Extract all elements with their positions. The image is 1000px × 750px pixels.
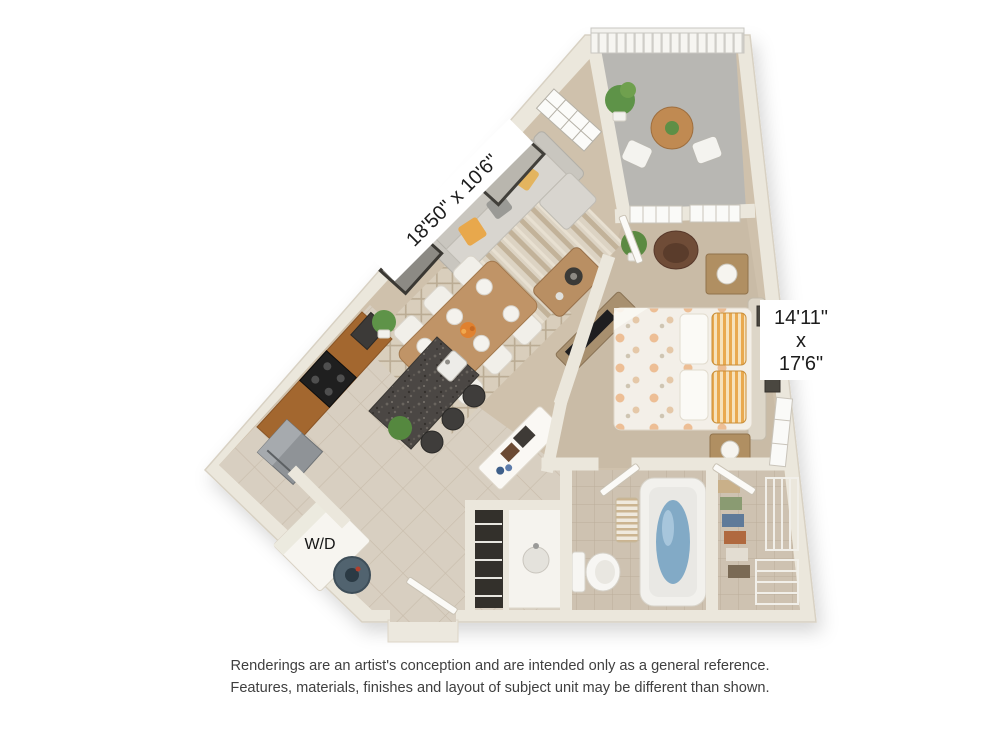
towels bbox=[616, 498, 638, 542]
disclaimer: Renderings are an artist's conception an… bbox=[230, 658, 769, 696]
lamp bbox=[721, 441, 739, 459]
entry-step bbox=[388, 620, 458, 642]
disclaimer-line1: Renderings are an artist's conception an… bbox=[230, 658, 769, 674]
bar-stool bbox=[442, 408, 464, 430]
tub-water bbox=[656, 500, 690, 584]
disclaimer-line2: Features, materials, finishes and layout… bbox=[230, 680, 769, 696]
vanity-sink bbox=[523, 547, 549, 573]
bar-stool bbox=[463, 385, 485, 407]
bedroom-dimension-line1: 14'11" bbox=[774, 307, 828, 329]
bedroom-dimension-line3: 17'6" bbox=[779, 353, 823, 375]
accent-pillow bbox=[712, 313, 746, 365]
floor-plan-rendering: 18'50" x 10'6" 14'11" x 17'6" W/D Render… bbox=[0, 0, 1000, 750]
bedroom-dimension-line2: x bbox=[796, 330, 806, 352]
bedroom-dimension-label: 14'11" x 17'6" bbox=[760, 300, 844, 380]
accent-pillow bbox=[712, 371, 746, 423]
bar-stool bbox=[421, 431, 443, 453]
lamp bbox=[717, 264, 737, 284]
washer-dryer-label: W/D bbox=[304, 536, 335, 553]
potted-plant bbox=[388, 416, 412, 440]
toilet-tank bbox=[572, 552, 585, 592]
floor-plan-canvas: 18'50" x 10'6" 14'11" x 17'6" W/D Render… bbox=[0, 0, 1000, 750]
